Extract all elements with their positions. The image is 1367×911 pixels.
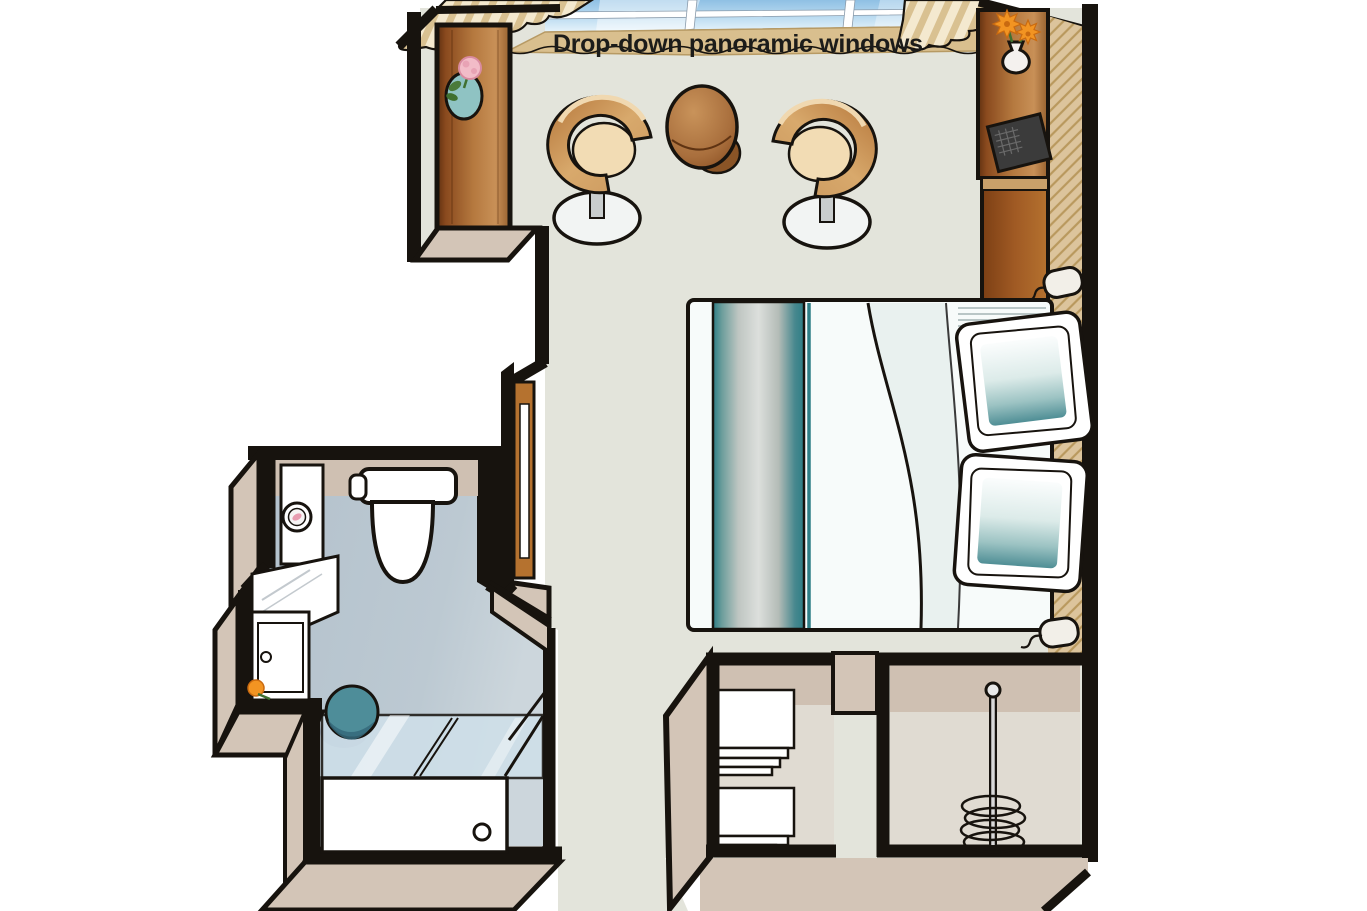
linen-stack — [716, 788, 794, 853]
cabinet-knob — [261, 652, 271, 662]
flower-center — [1004, 21, 1010, 27]
closet-back-band — [890, 662, 1080, 712]
pink-flower — [459, 57, 481, 79]
pillow — [955, 311, 1094, 453]
lamp-body — [1038, 616, 1079, 648]
page-title: Drop-down panoramic windows — [553, 30, 923, 58]
cabin-floorplan: Drop-down panoramic windows — [0, 0, 1367, 911]
bed — [688, 300, 1094, 630]
closets — [666, 653, 1088, 911]
pillow-panel — [977, 477, 1063, 568]
pillow-panel — [980, 335, 1067, 426]
bed-runner — [713, 302, 804, 629]
closet-bottom-face — [700, 858, 1088, 911]
toilet-tank — [360, 469, 456, 503]
drain-icon — [474, 824, 490, 840]
cabinet-top-band — [982, 178, 1048, 190]
pink-flower-detail — [471, 68, 477, 74]
left-cabinet — [437, 25, 510, 228]
closet-partition — [833, 653, 877, 713]
orange-flower-accent — [248, 680, 264, 696]
bedside-lamp-bottom — [1038, 616, 1079, 648]
wardrobe-linens — [706, 655, 836, 857]
entry-door-panel — [520, 404, 529, 558]
pink-flower-detail — [463, 61, 470, 68]
pillow — [953, 454, 1088, 592]
rail-knob — [986, 683, 1000, 697]
toilet-tank-cap — [350, 475, 366, 499]
bathroom-south-face — [262, 862, 560, 910]
wall-top-edge — [436, 8, 560, 10]
table-top — [667, 86, 737, 168]
closet-floor — [890, 712, 1080, 850]
wardrobe-hangers — [877, 653, 1088, 857]
flower-center — [1026, 32, 1031, 37]
floorplan-canvas: Drop-down panoramic windows — [0, 0, 1367, 911]
